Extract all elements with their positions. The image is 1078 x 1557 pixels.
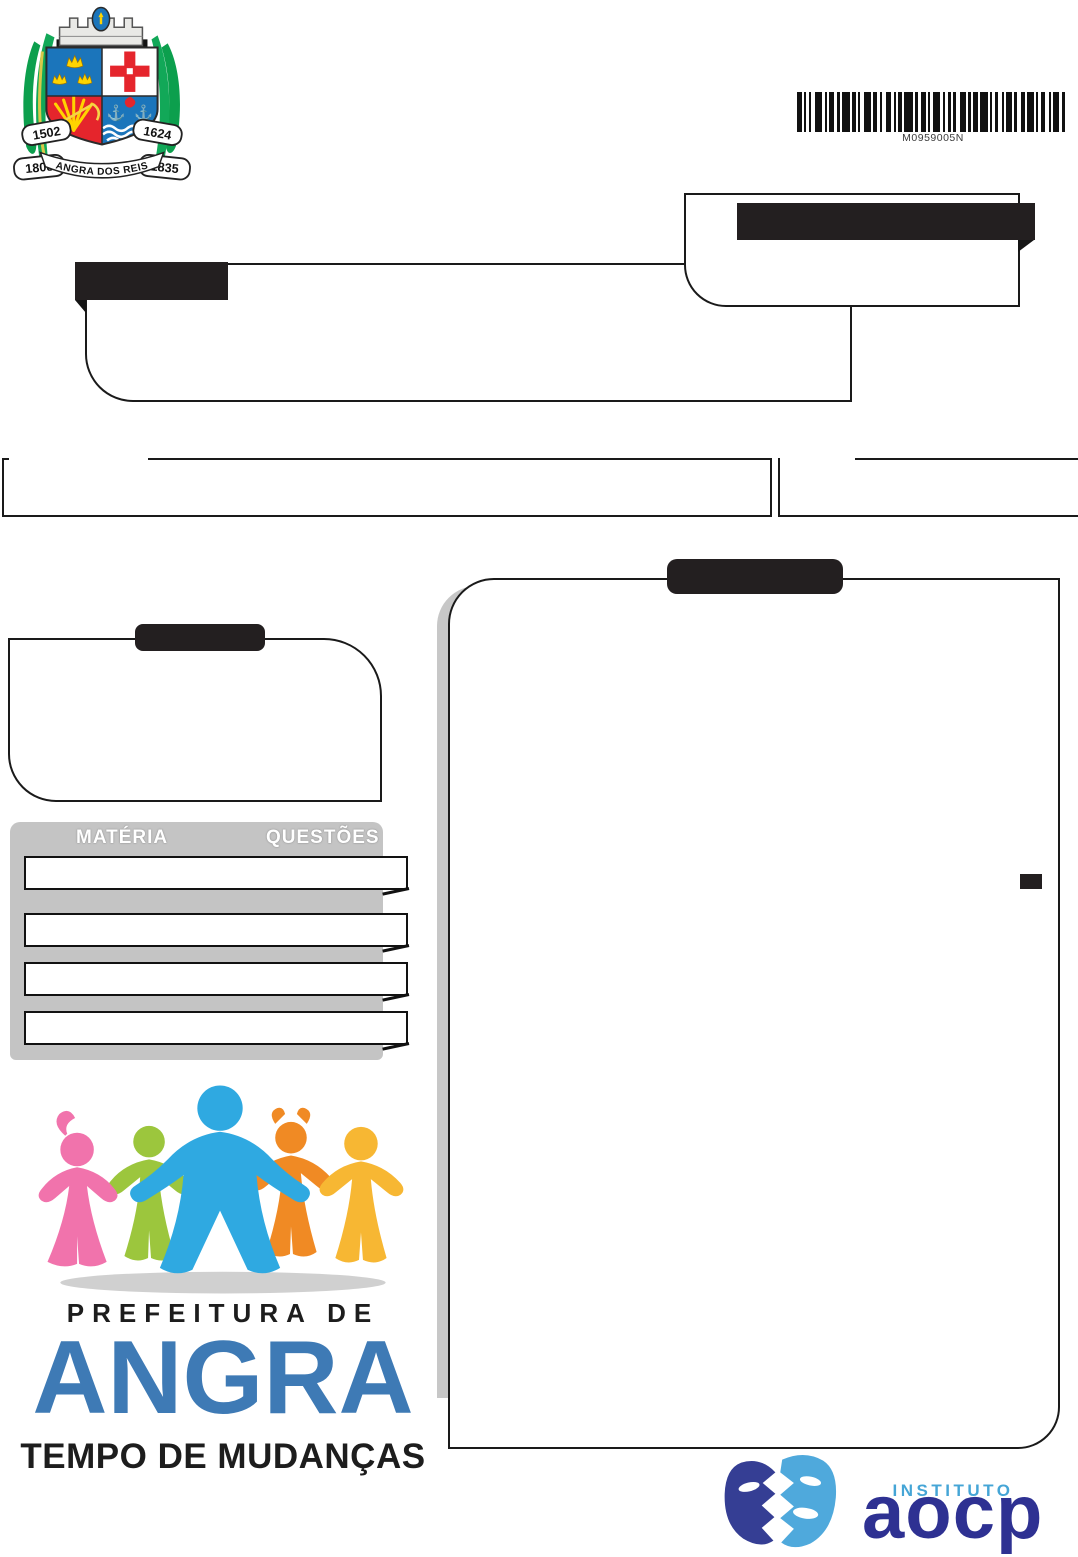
barcode-bar [915,92,917,132]
barcode-bar [980,92,988,132]
city-wordmark: PREFEITURA DE ANGRA TEMPO DE MUDANÇAS [0,1298,446,1477]
redacted-info-tab [135,624,265,651]
instructions-panel [448,578,1060,1449]
signature-field-box [778,458,1078,517]
barcode: M0959005N [797,92,1069,144]
barcode-bar [1036,92,1038,132]
barcode-bar [1002,92,1004,132]
redacted-header-bar [737,203,1035,240]
aocp-text: aocp [862,1475,1043,1551]
barcode-label: M0959005N [797,132,1069,144]
questoes-cell [50,964,70,978]
barcode-bar [837,92,839,132]
exam-cover-page: ⚓ ⚓ 1502 1624 1808 [0,0,1078,1557]
angra-text: ANGRA [0,1331,446,1427]
barcode-bar [797,92,802,132]
table-row [24,962,408,996]
barcode-bar [990,92,992,132]
materia-cell [26,1013,46,1027]
table-row [24,913,408,947]
barcode-bar [852,92,855,132]
questoes-cell [50,915,70,929]
barcode-bar [815,92,822,132]
logo-shadow [60,1272,385,1294]
barcode-bar [1049,92,1051,132]
angra-people-logo [14,1072,428,1300]
barcode-bar [894,92,896,132]
info-box [8,638,382,802]
redacted-title-tab [75,262,228,300]
bar-fold-icon [1018,240,1034,252]
table-row [24,1011,408,1045]
barcode-bar [1021,92,1024,132]
barcode-bar [1014,92,1016,132]
barcode-bars [797,92,1069,132]
signature-field-border [855,458,1078,460]
barcode-bar [873,92,878,132]
barcode-bar [880,92,882,132]
angra-coat-of-arms: ⚓ ⚓ 1502 1624 1808 [6,2,198,198]
redacted-panel-tab [667,559,843,594]
barcode-bar [943,92,945,132]
name-field-border-stub [2,458,9,460]
barcode-bar [948,92,951,132]
barcode-bar [960,92,966,132]
barcode-bar [842,92,850,132]
aocp-masks-icon [712,1452,868,1556]
table-row [24,856,408,890]
barcode-bar [825,92,827,132]
barcode-bar [1053,92,1059,132]
barcode-bar [858,92,860,132]
barcode-bar [968,92,970,132]
materia-header: MATÉRIA [76,827,168,849]
barcode-bar [886,92,892,132]
materia-cell [26,964,46,978]
barcode-bar [1006,92,1012,132]
barcode-bar [973,92,978,132]
barcode-bar [898,92,901,132]
yellow-figure-icon [320,1127,404,1263]
tempo-de-mudancas-text: TEMPO DE MUDANÇAS [0,1437,446,1477]
barcode-bar [953,92,955,132]
name-field-border [148,458,770,460]
barcode-bar [1041,92,1046,132]
barcode-bar [1027,92,1034,132]
barcode-bar [1062,92,1065,132]
barcode-bar [804,92,806,132]
barcode-bar [829,92,834,132]
questoes-header: QUESTÕES [266,827,380,849]
barcode-bar [921,92,926,132]
svg-text:⚓: ⚓ [107,104,126,122]
materia-cell [26,915,46,929]
barcode-bar [864,92,871,132]
barcode-bar [809,92,811,132]
name-field-box [2,458,772,517]
barcode-bar [928,92,930,132]
questoes-cell [50,1013,70,1027]
barcode-bar [995,92,998,132]
small-redaction-mark [1020,874,1042,889]
questoes-cell [50,858,70,872]
mural-crown-icon [60,8,143,46]
barcode-bar [933,92,940,132]
pink-figure-icon [39,1111,118,1267]
barcode-bar [904,92,913,132]
materia-cell [26,858,46,872]
tab-fold-icon [75,300,86,313]
